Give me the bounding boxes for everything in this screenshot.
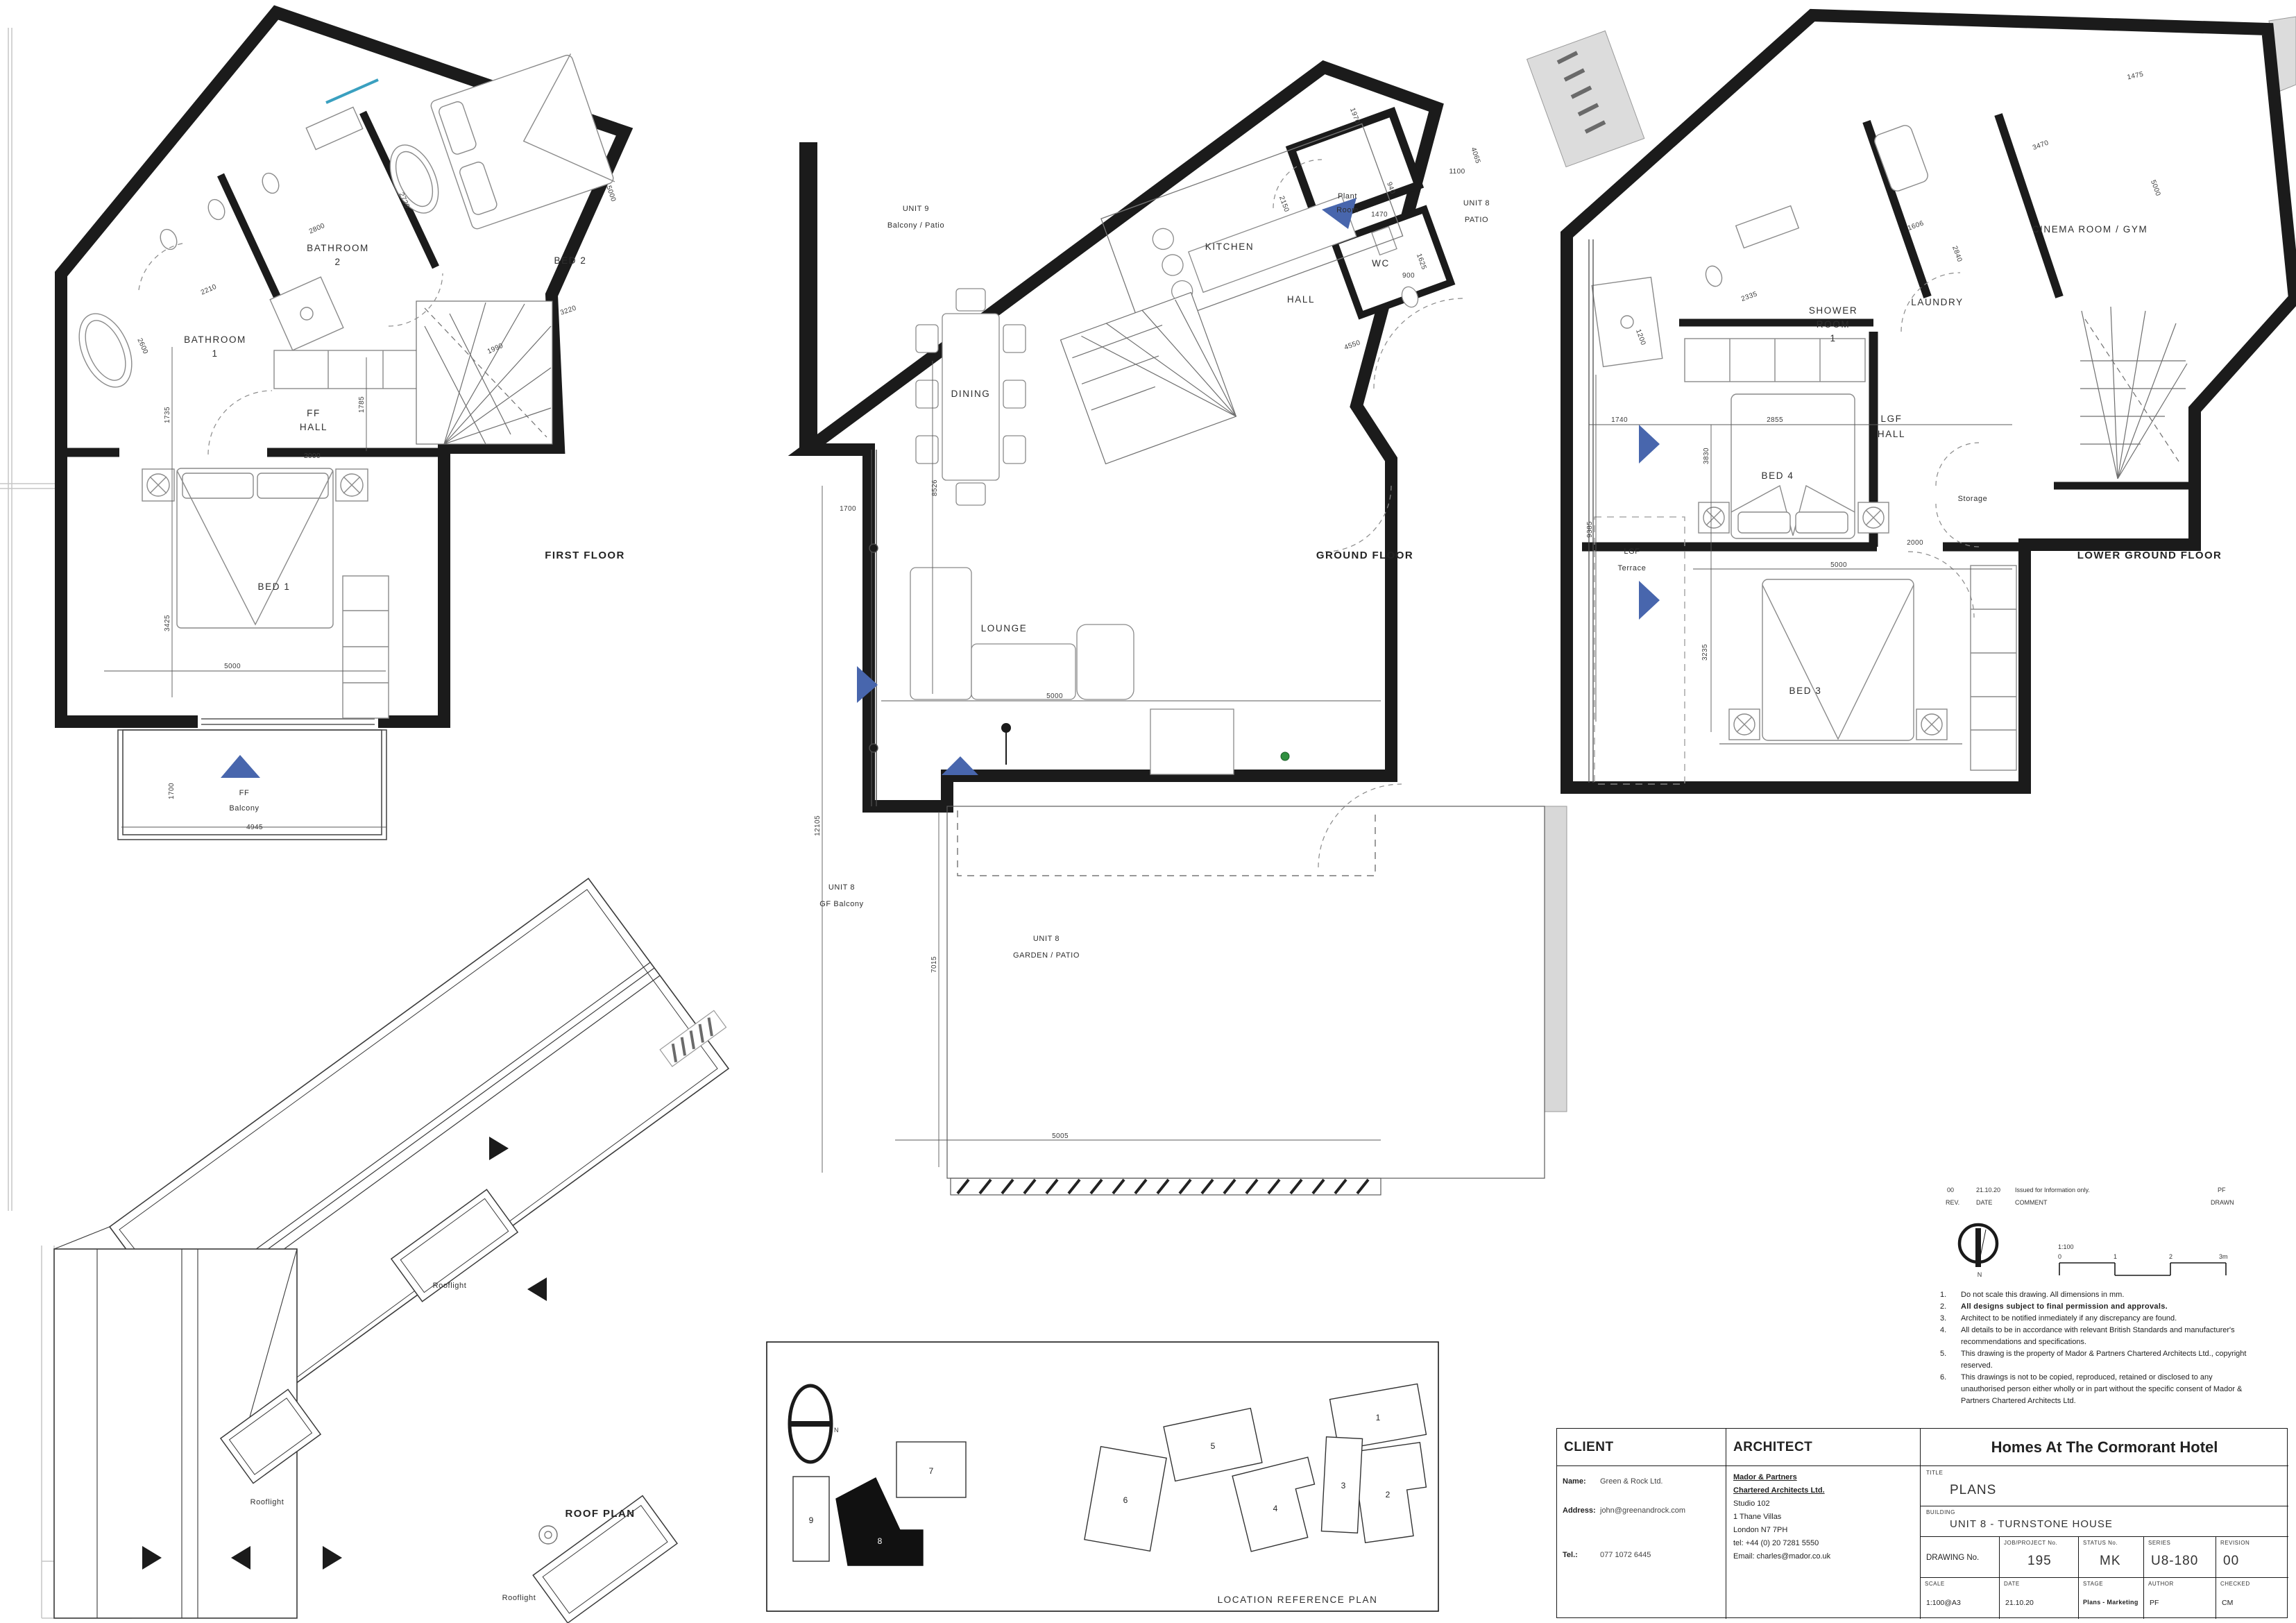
client-header-cell: CLIENT — [1557, 1429, 1726, 1466]
tel-label: Tel.: — [1563, 1551, 1578, 1559]
room-label: KITCHEN — [1205, 241, 1254, 252]
building-caption: BUILDING — [1926, 1509, 1955, 1515]
dim-label: 900 — [1402, 272, 1415, 280]
room-label: UNIT 8 — [1033, 935, 1060, 943]
note-text: Do not scale this drawing. All dimension… — [1961, 1289, 2256, 1301]
drawing-sheet: BATHROOM 1 BATHROOM 2 BED 2 FF HALL BED … — [0, 0, 2296, 1623]
chair — [1003, 380, 1026, 408]
dim-label: 5000 — [224, 663, 241, 670]
building-value: UNIT 8 - TURNSTONE HOUSE — [1950, 1518, 2113, 1530]
room-label: 1 — [212, 348, 218, 359]
rev-comment-value: Issued for Information only. — [2015, 1187, 2090, 1193]
garden-dashed-overhang — [958, 810, 1375, 876]
architect-header: ARCHITECT — [1733, 1440, 1812, 1455]
stage-value: Plans - Marketing — [2083, 1599, 2138, 1606]
dim-label: 1700 — [840, 505, 856, 513]
roof-arrow — [527, 1277, 547, 1301]
title-block: CLIENT ARCHITECT Homes At The Cormorant … — [1556, 1428, 2288, 1618]
location-reference-plan: N 1 2 3 4 5 6 7 8 9 LOCATION REFERENCE P… — [767, 1342, 1438, 1611]
chair — [956, 483, 985, 505]
lower-ground-floor-plan: SHOWER ROOM 1 LAUNDRY CINEMA ROOM / GYM … — [1567, 15, 2296, 788]
rooflight-label: Rooflight — [433, 1282, 467, 1290]
dim-label: 4065 — [1469, 146, 1481, 164]
room-label: Plant — [1338, 192, 1357, 201]
note-row: 2.All designs subject to final permissio… — [1940, 1301, 2256, 1313]
gf-unit9-wall — [799, 142, 817, 451]
room-label: ROOM — [1817, 319, 1850, 330]
room-label: UNIT 9 — [903, 205, 929, 213]
note-text: Architect to be notified inmediately if … — [1961, 1313, 2256, 1325]
dim-label: 5000 — [1046, 692, 1063, 700]
dim-label: 3235 — [1701, 644, 1709, 661]
scale-ratio: 1:100 — [2058, 1243, 2074, 1250]
client-info-cell: Name: Green & Rock Ltd. Address: john@gr… — [1557, 1466, 1726, 1619]
note-number: 4. — [1940, 1325, 1961, 1348]
note-number: 3. — [1940, 1313, 1961, 1325]
drawing-no-cell: DRAWING No. — [1920, 1537, 1999, 1578]
architect-line: Mador & Partners — [1733, 1473, 1797, 1481]
project-title: Homes At The Cormorant Hotel — [1991, 1438, 2218, 1456]
building-number: 9 — [809, 1515, 814, 1525]
note-row: 3.Architect to be notified inmediately i… — [1940, 1313, 2256, 1325]
rev-label: REV. — [1946, 1199, 1959, 1206]
chair — [916, 325, 938, 352]
room-label: Storage — [1958, 495, 1988, 503]
architect-line: Studio 102 — [1733, 1499, 1770, 1508]
room-label: CINEMA ROOM / GYM — [2032, 224, 2148, 235]
scale-caption: SCALE — [1925, 1581, 1945, 1587]
address-label: Address: — [1563, 1506, 1596, 1515]
first-floor-plan: BATHROOM 1 BATHROOM 2 BED 2 FF HALL BED … — [61, 12, 625, 840]
architect-line: tel: +44 (0) 20 7281 5550 — [1733, 1539, 1819, 1547]
architect-line: Chartered Architects Ltd. — [1733, 1486, 1825, 1495]
north-needle — [1975, 1228, 1981, 1267]
date-value: 21.10.20 — [2005, 1599, 2034, 1607]
dim-label: 1735 — [164, 407, 171, 423]
status-caption: STATUS No. — [2083, 1540, 2118, 1546]
title-caption: TITLE — [1926, 1470, 1943, 1476]
room-label: BATHROOM — [307, 243, 369, 253]
note-text: All details to be in accordance with rel… — [1961, 1325, 2256, 1348]
chair — [916, 380, 938, 408]
architect-info-cell: Mador & Partners Chartered Architects Lt… — [1726, 1466, 1920, 1619]
location-north-bar — [790, 1421, 831, 1427]
author-cell: AUTHOR PF — [2143, 1578, 2216, 1619]
architect-line: Email: charles@mador.co.uk — [1733, 1552, 1830, 1561]
room-label: BED 2 — [554, 255, 586, 266]
architect-header-cell: ARCHITECT — [1726, 1429, 1920, 1466]
series-value: U8-180 — [2151, 1554, 2198, 1569]
dim-label: 2000 — [304, 452, 321, 460]
dim-label: 1100 — [1449, 168, 1465, 176]
dim-label: 8526 — [931, 479, 939, 496]
checked-cell: CHECKED CM — [2216, 1578, 2288, 1619]
building-number: 5 — [1211, 1441, 1216, 1451]
pillow — [257, 473, 328, 498]
sofa — [971, 644, 1075, 699]
author-caption: AUTHOR — [2148, 1581, 2174, 1587]
dim-label: 1740 — [1611, 416, 1628, 424]
dim-label: 12105 — [814, 815, 822, 836]
job-no-cell: JOB/PROJECT No. 195 — [1999, 1537, 2078, 1578]
note-number: 2. — [1940, 1301, 1961, 1313]
room-label: LOUNGE — [981, 623, 1028, 634]
note-row: 5.This drawing is the property of Mador … — [1940, 1348, 2256, 1372]
garden-boundary — [947, 806, 1545, 1178]
architect-line: 1 Thane Villas — [1733, 1513, 1781, 1521]
location-title: LOCATION REFERENCE PLAN — [1218, 1595, 1378, 1605]
room-label: FF — [307, 408, 321, 418]
rug — [1150, 709, 1234, 774]
building-number: 7 — [929, 1466, 934, 1476]
lgf-wall-outline — [1567, 15, 2295, 788]
gf-green-dot — [1281, 752, 1289, 760]
room-label: LGF — [1624, 547, 1640, 556]
shower-drain — [1621, 316, 1633, 328]
note-number: 5. — [1940, 1348, 1961, 1372]
location-north-label: N — [834, 1427, 839, 1434]
floor-title: GROUND FLOOR — [1316, 550, 1413, 561]
name-label: Name: — [1563, 1477, 1586, 1486]
room-label: UNIT 8 — [1463, 199, 1490, 207]
floor-title: FIRST FLOOR — [545, 550, 624, 561]
note-text: This drawings is not to be copied, repro… — [1961, 1372, 2256, 1407]
entry-arrow — [221, 755, 260, 778]
chaise — [1077, 624, 1134, 699]
scale-tick-label: 2 — [2169, 1253, 2172, 1260]
building-number: 3 — [1341, 1481, 1346, 1490]
north-symbol: N — [1959, 1225, 1997, 1278]
rooflight-label: Rooflight — [502, 1594, 536, 1602]
author-value: PF — [2150, 1599, 2159, 1607]
room-label: BED 4 — [1761, 470, 1794, 481]
grey-wall — [1545, 806, 1567, 1112]
series-caption: SERIES — [2148, 1540, 2170, 1546]
scale-value: 1:100@A3 — [1926, 1599, 1961, 1607]
room-label: SHOWER — [1809, 305, 1857, 316]
comment-label: COMMENT — [2015, 1199, 2048, 1206]
room-label: LGF — [1880, 414, 1902, 424]
building-number: 2 — [1386, 1490, 1391, 1499]
job-value: 195 — [2027, 1554, 2052, 1569]
dim-label: 2000 — [1907, 539, 1923, 547]
scale-tick-label: 0 — [2058, 1253, 2061, 1260]
room-label: HALL — [1287, 294, 1315, 305]
roof-drain — [539, 1526, 557, 1544]
room-label: DINING — [951, 389, 991, 399]
address-value: john@greenandrock.com — [1600, 1506, 1685, 1515]
door-arc — [1318, 784, 1402, 867]
job-caption: JOB/PROJECT No. — [2004, 1540, 2057, 1546]
note-row: 1.Do not scale this drawing. All dimensi… — [1940, 1289, 2256, 1301]
roof-plan: Rooflight Rooflight Rooflight ROOF PLAN — [54, 878, 729, 1623]
chair — [956, 289, 985, 311]
pillow — [1796, 512, 1848, 533]
dim-label: 9385 — [1586, 521, 1594, 538]
scale-bar: 1:100 0 1 2 3m — [2058, 1243, 2228, 1275]
drawn-label: DRAWN — [2211, 1199, 2234, 1206]
dim-label: 5000 — [604, 185, 617, 203]
revision-cell: REVISION 00 — [2216, 1537, 2288, 1578]
note-number: 1. — [1940, 1289, 1961, 1301]
date-caption: DATE — [2004, 1581, 2020, 1587]
gf-garden — [947, 806, 1545, 1195]
room-label: 1 — [1830, 333, 1836, 343]
balcony-rail-inner — [123, 730, 382, 835]
title-row-cell: TITLE PLANS — [1920, 1466, 2288, 1506]
status-cell: STATUS No. MK — [2078, 1537, 2143, 1578]
stage-caption: STAGE — [2083, 1581, 2103, 1587]
room-label: GARDEN / PATIO — [1013, 951, 1080, 960]
chair — [916, 436, 938, 464]
client-header: CLIENT — [1564, 1440, 1614, 1455]
floor-title: LOWER GROUND FLOOR — [2077, 550, 2222, 561]
status-value: MK — [2100, 1554, 2121, 1569]
dim-label: 1785 — [358, 396, 366, 413]
building-number: 6 — [1123, 1495, 1128, 1505]
ground-floor-plan: UNIT 9 Balcony / Patio KITCHEN Plant Roo… — [799, 31, 1644, 1195]
dim-label: 1470 — [1371, 211, 1388, 219]
room-label: Balcony / Patio — [887, 221, 944, 230]
series-cell: SERIES U8-180 — [2143, 1537, 2216, 1578]
dim-label: 4945 — [246, 824, 263, 831]
building-number: 8 — [878, 1536, 883, 1546]
note-row: 6.This drawings is not to be copied, rep… — [1940, 1372, 2256, 1407]
general-notes: 1.Do not scale this drawing. All dimensi… — [1940, 1289, 2256, 1407]
date-cell: DATE 21.10.20 — [1999, 1578, 2078, 1619]
stair-box — [416, 301, 552, 444]
ff-stairs — [416, 301, 552, 444]
dim-label: 7015 — [930, 956, 938, 973]
room-label: BATHROOM — [184, 334, 246, 345]
deck-hatch — [958, 1180, 1368, 1193]
checked-value: CM — [2222, 1599, 2233, 1607]
roof-arrow — [323, 1546, 342, 1570]
room-label: BED 1 — [257, 581, 290, 592]
scale-tick-label: 1 — [2114, 1253, 2117, 1260]
room-label: Room — [1336, 206, 1359, 214]
note-text: All designs subject to final permission … — [1961, 1301, 2256, 1313]
stage-cell: STAGE Plans - Marketing — [2078, 1578, 2143, 1619]
room-label: 2 — [334, 257, 341, 267]
north-label: N — [1978, 1271, 1982, 1278]
architect-line: London N7 7PH — [1733, 1526, 1787, 1534]
building-row-cell: BUILDING UNIT 8 - TURNSTONE HOUSE — [1920, 1506, 2288, 1537]
sofa — [910, 568, 971, 699]
rev-drawn-value: PF — [2218, 1187, 2226, 1193]
dim-label: 3830 — [1703, 448, 1710, 464]
room-label: HALL — [300, 422, 328, 432]
revision-value: 00 — [2223, 1554, 2239, 1569]
rooflight-label: Rooflight — [250, 1498, 284, 1506]
project-title-cell: Homes At The Cormorant Hotel — [1920, 1429, 2288, 1466]
note-row: 4.All details to be in accordance with r… — [1940, 1325, 2256, 1348]
dim-label: 5000 — [1830, 561, 1847, 569]
room-label: WC — [1372, 258, 1390, 269]
building-number: 1 — [1376, 1413, 1381, 1422]
room-label: HALL — [1878, 429, 1905, 439]
revision-caption: REVISION — [2220, 1540, 2250, 1546]
roof-drain-inner — [545, 1531, 552, 1538]
grey-wall — [1527, 31, 1644, 167]
building-number: 4 — [1273, 1504, 1278, 1513]
drawing-no-label: DRAWING No. — [1926, 1554, 1979, 1562]
scale-tick-label: 3m — [2219, 1253, 2228, 1260]
checked-caption: CHECKED — [2220, 1581, 2250, 1587]
pillow — [1738, 512, 1790, 533]
rev-date-value: 21.10.20 — [1976, 1187, 2000, 1193]
dim-label: 2855 — [1767, 416, 1783, 424]
name-value: Green & Rock Ltd. — [1600, 1477, 1663, 1486]
dim-label: 5005 — [1052, 1132, 1069, 1140]
room-label: PATIO — [1465, 216, 1488, 224]
mullion-dot — [869, 544, 878, 552]
room-label: LAUNDRY — [1911, 297, 1963, 307]
room-label: FF — [239, 789, 250, 797]
mullion-dot — [869, 744, 878, 752]
room-label: Balcony — [229, 804, 259, 813]
title-value: PLANS — [1950, 1483, 1996, 1498]
garden-deck-strip — [951, 1178, 1381, 1195]
bench — [274, 350, 437, 389]
scale-bar-steps — [2059, 1263, 2226, 1275]
chair — [1003, 436, 1026, 464]
note-text: This drawing is the property of Mador & … — [1961, 1348, 2256, 1372]
room-label: UNIT 8 — [828, 883, 855, 892]
chair — [1003, 325, 1026, 352]
wardrobe — [1971, 566, 2016, 770]
shower-drain — [300, 307, 313, 320]
dim-label: 3425 — [164, 615, 171, 631]
tel-value: 077 1072 6445 — [1600, 1551, 1651, 1559]
pillow — [182, 473, 253, 498]
room-label: BED 3 — [1789, 686, 1821, 696]
floor-title: ROOF PLAN — [566, 1508, 636, 1520]
dim-label: 1700 — [168, 783, 176, 799]
dim-label: 3220 — [559, 305, 577, 317]
rev-entry-value: 00 — [1947, 1187, 1954, 1193]
bed — [1762, 579, 1914, 740]
room-label: GF Balcony — [819, 900, 863, 908]
scale-cell: SCALE 1:100@A3 — [1920, 1578, 1999, 1619]
date-label: DATE — [1976, 1199, 1992, 1206]
room-label: Terrace — [1618, 564, 1647, 572]
note-number: 6. — [1940, 1372, 1961, 1407]
